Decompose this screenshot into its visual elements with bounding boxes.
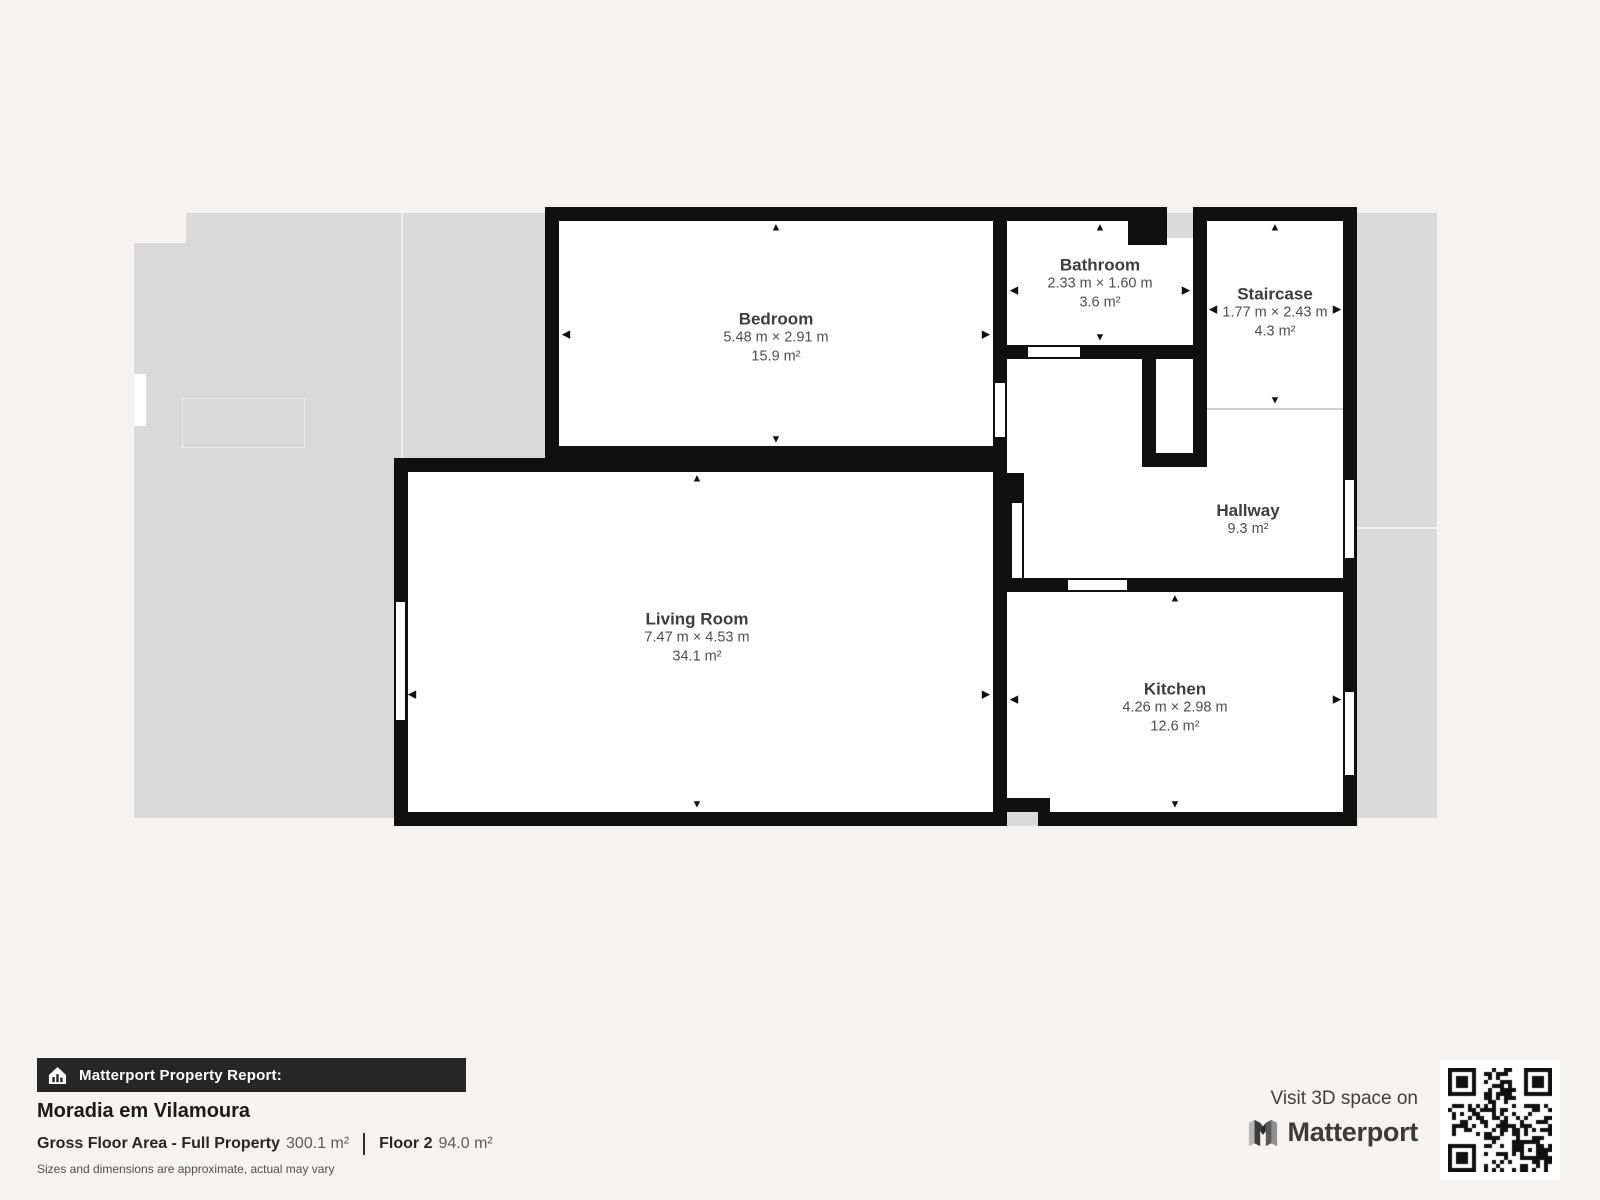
- measure-arrow-left-icon: ◀: [1209, 305, 1217, 316]
- wall: [993, 345, 1207, 359]
- divider: [363, 1133, 365, 1155]
- room-name: Kitchen: [1122, 680, 1227, 699]
- room-label-staircase: Staircase 1.77 m × 2.43 m 4.3 m²: [1222, 285, 1327, 342]
- measure-arrow-down-icon: ▼: [1170, 800, 1181, 811]
- bedroom-door-opening: [995, 383, 1005, 437]
- bathroom-door-opening: [1028, 347, 1080, 357]
- wall: [1193, 207, 1207, 455]
- measure-arrow-left-icon: ◀: [1010, 695, 1018, 706]
- measure-arrow-down-icon: ▼: [1095, 333, 1106, 344]
- room-area: 34.1 m²: [644, 648, 749, 667]
- room-label-kitchen: Kitchen 4.26 m × 2.98 m 12.6 m²: [1122, 680, 1227, 737]
- room-dimensions: 2.33 m × 1.60 m: [1047, 275, 1152, 294]
- floor-label: Floor 2: [379, 1135, 432, 1153]
- wall: [1028, 812, 1357, 826]
- wall: [1007, 798, 1050, 812]
- measure-arrow-up-icon: ▲: [1095, 223, 1106, 234]
- matterport-logo-icon: [1247, 1118, 1279, 1148]
- visit-3d-text: Visit 3D space on: [1270, 1088, 1418, 1110]
- hallway-floor: [1007, 359, 1343, 578]
- measure-arrow-down-icon: ▼: [771, 435, 782, 446]
- room-name: Bathroom: [1047, 256, 1152, 275]
- wall-notch: [1167, 213, 1193, 238]
- measure-arrow-left-icon: ◀: [408, 690, 416, 701]
- terrace-divider-line: [1357, 527, 1437, 529]
- kitchen-window: [1345, 692, 1354, 775]
- report-bar-label: Matterport Property Report:: [79, 1067, 282, 1084]
- measure-arrow-down-icon: ▼: [692, 800, 703, 811]
- measure-arrow-up-icon: ▲: [1170, 594, 1181, 605]
- room-area: 4.3 m²: [1222, 323, 1327, 342]
- measure-arrow-up-icon: ▲: [771, 223, 782, 234]
- matterport-wordmark: Matterport: [1288, 1117, 1419, 1148]
- wall: [545, 207, 559, 460]
- room-area: 12.6 m²: [1122, 718, 1227, 737]
- room-label-bathroom: Bathroom 2.33 m × 1.60 m 3.6 m²: [1047, 256, 1152, 313]
- wall: [993, 207, 1007, 826]
- floor-value: 94.0 m²: [439, 1135, 493, 1153]
- report-header-bar: Matterport Property Report:: [37, 1058, 466, 1092]
- measure-arrow-up-icon: ▲: [1270, 223, 1281, 234]
- room-dimensions: 7.47 m × 4.53 m: [644, 629, 749, 648]
- measure-arrow-up-icon: ▲: [692, 474, 703, 485]
- house-report-icon: [48, 1066, 67, 1085]
- property-name: Moradia em Vilamoura: [37, 1100, 250, 1123]
- wall-notch: [1007, 812, 1038, 826]
- floor-plan-report: Bedroom 5.48 m × 2.91 m 15.9 m² Bathroom…: [0, 0, 1600, 1200]
- room-name: Staircase: [1222, 285, 1327, 304]
- hallway-window: [1345, 480, 1354, 558]
- wall: [1142, 453, 1207, 467]
- room-dimensions: 1.77 m × 2.43 m: [1222, 304, 1327, 323]
- measure-arrow-down-icon: ▼: [1270, 396, 1281, 407]
- terrace-edge-opening: [134, 374, 146, 426]
- wall: [394, 812, 1007, 826]
- measure-arrow-right-icon: ▶: [982, 690, 990, 701]
- wall: [394, 458, 1007, 472]
- wall: [1142, 359, 1156, 453]
- room-name: Hallway: [1216, 501, 1279, 520]
- room-area: 15.9 m²: [723, 348, 828, 367]
- room-area: 9.3 m²: [1216, 520, 1279, 539]
- disclaimer-text: Sizes and dimensions are approximate, ac…: [37, 1162, 334, 1176]
- gross-floor-area-value: 300.1 m²: [286, 1135, 349, 1153]
- kitchen-door-opening: [1068, 580, 1127, 590]
- room-name: Living Room: [644, 610, 749, 629]
- staircase-hallway-boundary: [1207, 408, 1343, 410]
- measure-arrow-right-icon: ▶: [982, 330, 990, 341]
- room-dimensions: 5.48 m × 2.91 m: [723, 329, 828, 348]
- wall: [1193, 207, 1357, 221]
- room-area: 3.6 m²: [1047, 294, 1152, 313]
- room-label-bedroom: Bedroom 5.48 m × 2.91 m 15.9 m²: [723, 310, 828, 367]
- measure-arrow-right-icon: ▶: [1333, 695, 1341, 706]
- terrace-divider-line: [401, 213, 403, 458]
- qr-code: [1440, 1060, 1560, 1180]
- gross-floor-area-label: Gross Floor Area - Full Property: [37, 1135, 280, 1153]
- area-summary: Gross Floor Area - Full Property 300.1 m…: [37, 1133, 493, 1155]
- measure-arrow-right-icon: ▶: [1182, 286, 1190, 297]
- measure-arrow-left-icon: ◀: [562, 330, 570, 341]
- room-name: Bedroom: [723, 310, 828, 329]
- hallway-door-opening: [1012, 503, 1022, 578]
- room-label-living-room: Living Room 7.47 m × 4.53 m 34.1 m²: [644, 610, 749, 667]
- terrace-divider-box: [182, 398, 305, 448]
- brand-group: Visit 3D space on Matterport: [1247, 1088, 1419, 1148]
- living-room-window: [396, 602, 405, 720]
- brand-row: Matterport: [1247, 1117, 1419, 1148]
- measure-arrow-left-icon: ◀: [1010, 286, 1018, 297]
- wall: [1007, 578, 1357, 592]
- room-dimensions: 4.26 m × 2.98 m: [1122, 699, 1227, 718]
- wall: [545, 207, 1128, 221]
- measure-arrow-right-icon: ▶: [1333, 305, 1341, 316]
- qr-code-canvas: [1448, 1068, 1552, 1172]
- room-label-hallway: Hallway 9.3 m²: [1216, 501, 1279, 539]
- wall: [1128, 207, 1167, 245]
